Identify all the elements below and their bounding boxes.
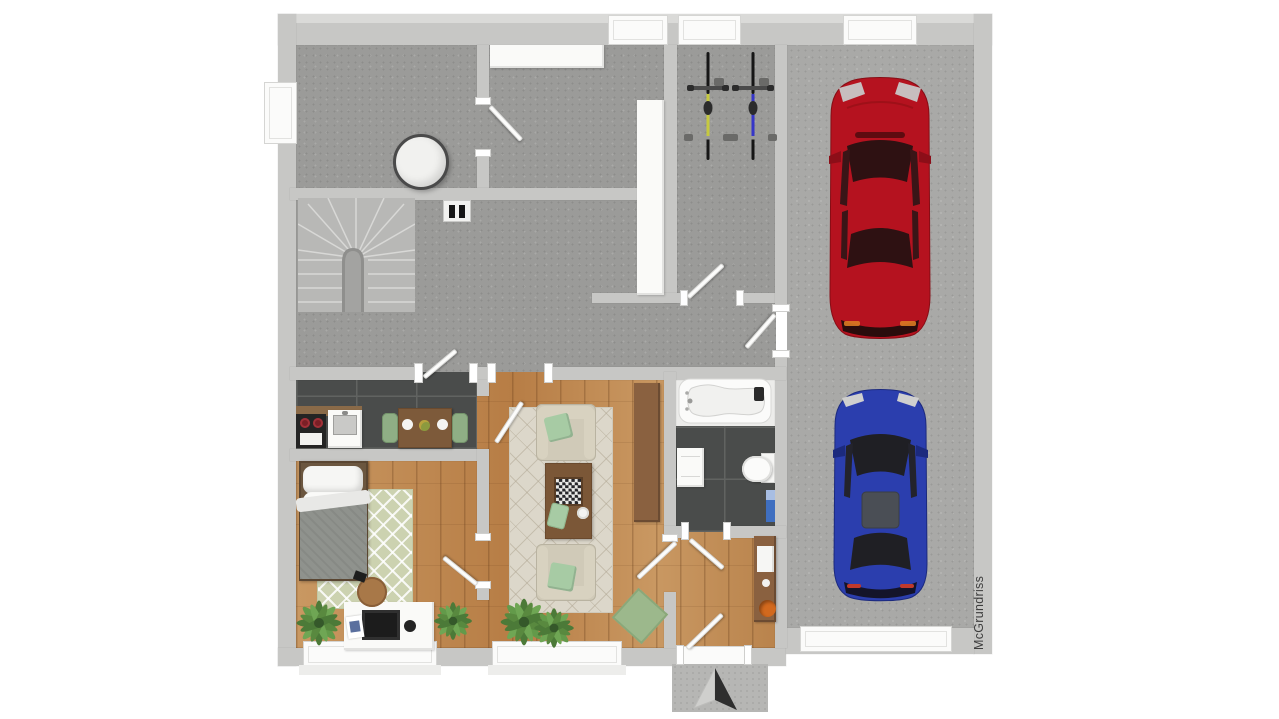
garage-door-panel — [848, 20, 912, 40]
wall-bike-left — [664, 45, 677, 303]
kitchen-chair — [382, 413, 398, 443]
wall-kitchen-bedroom — [290, 449, 478, 461]
garage-door-top — [843, 15, 917, 45]
window-frame — [269, 87, 292, 139]
garage-door-panel — [805, 631, 947, 647]
wall-utility-right-a — [477, 45, 489, 102]
window-sill-bedroom — [299, 665, 441, 675]
kitchen-chair — [452, 413, 468, 443]
cabinet-line — [681, 476, 700, 477]
armchair-arm — [537, 546, 548, 597]
bicycle-blue — [729, 52, 777, 162]
corridor-tall-cabinet — [637, 100, 664, 295]
wall-utility-right-b — [477, 152, 489, 188]
wall-socket — [443, 200, 471, 222]
bathroom-cabinet — [677, 448, 704, 487]
towel-rail-blue — [766, 490, 775, 522]
orange-bowl — [759, 600, 776, 617]
dining-table — [398, 408, 452, 448]
door-jamb — [469, 363, 478, 383]
burner — [313, 418, 323, 428]
door-jamb — [681, 522, 689, 540]
garage-door-bottom — [800, 626, 952, 652]
sink-basin — [333, 415, 357, 435]
living-sideboard — [634, 383, 660, 522]
door-jamb — [475, 533, 491, 541]
window-sill-living — [488, 665, 626, 675]
watermark-text: McGrundriss — [972, 550, 994, 650]
floor-plan-canvas: McGrundriss — [0, 0, 1279, 719]
bed-pillow — [303, 466, 363, 494]
stove — [296, 414, 326, 448]
desk-monitor — [362, 610, 400, 640]
door-jamb — [772, 304, 790, 312]
sink-unit — [328, 410, 362, 448]
door-jamb — [736, 290, 744, 306]
door-jamb — [680, 290, 688, 306]
door-jamb — [723, 522, 731, 540]
paper-photo — [349, 620, 360, 632]
faucet — [342, 411, 348, 415]
bicycle-yellow — [684, 52, 732, 162]
entrance-white-dot — [762, 579, 770, 587]
staircase — [298, 198, 415, 312]
desk-mouse — [404, 620, 416, 632]
window-utility-left — [264, 82, 297, 144]
plant-living-2 — [532, 606, 576, 650]
chessboard — [556, 479, 581, 504]
entrance-arrow-icon — [690, 666, 740, 712]
corridor-wall-shelf — [490, 45, 604, 68]
plate — [402, 419, 413, 430]
wall-living-bath-a — [664, 372, 676, 540]
wall-garage-left-b — [775, 352, 787, 648]
red-car — [827, 76, 933, 342]
socket-slot — [459, 205, 465, 218]
door-jamb — [662, 534, 678, 542]
plant-bedroom-right — [432, 600, 474, 642]
burner — [300, 418, 310, 428]
door-jamb — [487, 363, 496, 383]
door-frame — [683, 20, 736, 40]
table-flowers — [419, 420, 430, 431]
door-jamb — [544, 363, 553, 383]
armchair-arm — [584, 546, 595, 597]
door-frame — [613, 20, 663, 40]
bed-blanket — [300, 500, 367, 579]
socket-slot — [449, 205, 455, 218]
door-jamb — [475, 149, 491, 157]
toilet-bowl — [742, 456, 772, 482]
plant-bedroom-left — [294, 598, 344, 648]
armchair-top — [536, 404, 596, 461]
door-top-corridor — [608, 15, 668, 45]
bathtub — [678, 378, 772, 424]
door-jamb — [475, 97, 491, 105]
door-jamb — [676, 645, 684, 665]
door-jamb — [744, 645, 752, 665]
armchair-arm — [584, 408, 595, 459]
round-table — [393, 134, 449, 190]
wall-bedroom-right-a — [477, 449, 489, 538]
stove-drawer — [300, 433, 322, 445]
door-top-bike-room — [678, 15, 741, 45]
table-bowl — [577, 507, 589, 519]
desk-paper — [346, 615, 365, 639]
plate — [437, 419, 448, 430]
blue-car — [832, 388, 929, 602]
armchair-bottom — [536, 544, 596, 601]
wall-living-bath-b — [664, 592, 676, 648]
door-jamb — [772, 350, 790, 358]
cabinet-line — [681, 456, 700, 457]
door-jamb — [414, 363, 423, 383]
mint-cushion — [547, 562, 577, 592]
wall-mid-horizontal-a — [290, 367, 422, 380]
entrance-white-box — [757, 546, 774, 572]
